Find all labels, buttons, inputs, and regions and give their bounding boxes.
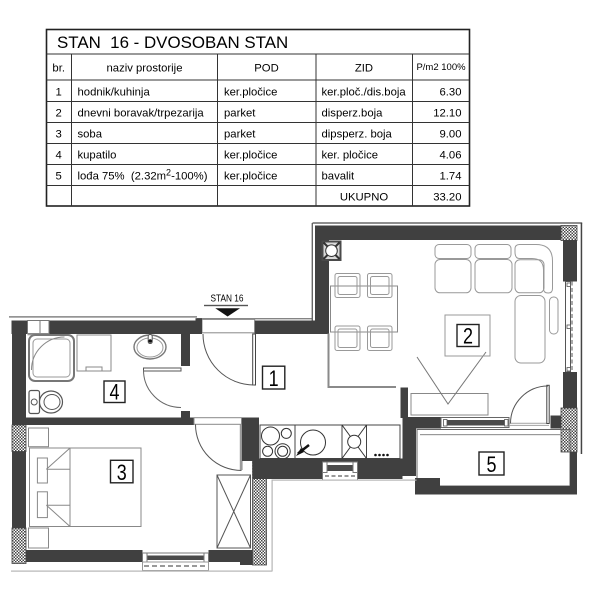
- svg-text:3: 3: [117, 460, 127, 485]
- svg-text:STAN 16 - DVOSOBAN STAN: STAN 16 - DVOSOBAN STAN: [57, 33, 288, 52]
- svg-text:5: 5: [56, 171, 62, 183]
- svg-text:lođa 75% (2.32m2-100%): lođa 75% (2.32m2-100%): [78, 168, 208, 183]
- svg-text:UKUPNO: UKUPNO: [340, 192, 389, 204]
- svg-text:ker.pločice: ker.pločice: [224, 87, 277, 99]
- svg-text:1: 1: [269, 366, 279, 391]
- svg-text:1: 1: [56, 87, 62, 99]
- svg-text:3: 3: [56, 129, 62, 141]
- svg-text:STAN 16: STAN 16: [211, 294, 244, 305]
- svg-text:P/m2 100%: P/m2 100%: [416, 62, 466, 73]
- svg-text:br.: br.: [52, 63, 65, 75]
- svg-text:dipsperz. boja: dipsperz. boja: [322, 129, 393, 141]
- svg-text:hodnik/kuhinja: hodnik/kuhinja: [78, 87, 151, 99]
- svg-text:5: 5: [487, 452, 497, 477]
- svg-text:POD: POD: [254, 63, 278, 75]
- svg-text:dnevni boravak/trpezarija: dnevni boravak/trpezarija: [78, 108, 205, 120]
- svg-text:2: 2: [56, 108, 62, 120]
- svg-text:6.30: 6.30: [440, 87, 462, 99]
- svg-text:4.06: 4.06: [440, 150, 462, 162]
- svg-text:2: 2: [463, 324, 473, 349]
- svg-text:soba: soba: [78, 129, 103, 141]
- svg-text:naziv prostorije: naziv prostorije: [107, 63, 183, 75]
- svg-text:parket: parket: [224, 129, 256, 141]
- svg-text:33.20: 33.20: [433, 192, 461, 204]
- svg-text:parket: parket: [224, 108, 256, 120]
- svg-text:4: 4: [56, 150, 62, 162]
- svg-text:kupatilo: kupatilo: [78, 150, 117, 162]
- svg-text:9.00: 9.00: [440, 129, 462, 141]
- svg-text:ker.pločice: ker.pločice: [224, 171, 277, 183]
- svg-text:bavalit: bavalit: [322, 171, 356, 183]
- svg-text:4: 4: [110, 380, 120, 405]
- svg-text:ker.ploč./dis.boja: ker.ploč./dis.boja: [322, 87, 407, 99]
- svg-text:1.74: 1.74: [440, 171, 462, 183]
- svg-text:ker. pločice: ker. pločice: [322, 150, 379, 162]
- svg-text:disperz.boja: disperz.boja: [322, 108, 384, 120]
- svg-text:ZID: ZID: [355, 63, 373, 75]
- svg-text:ker.pločice: ker.pločice: [224, 150, 277, 162]
- svg-text:12.10: 12.10: [433, 108, 461, 120]
